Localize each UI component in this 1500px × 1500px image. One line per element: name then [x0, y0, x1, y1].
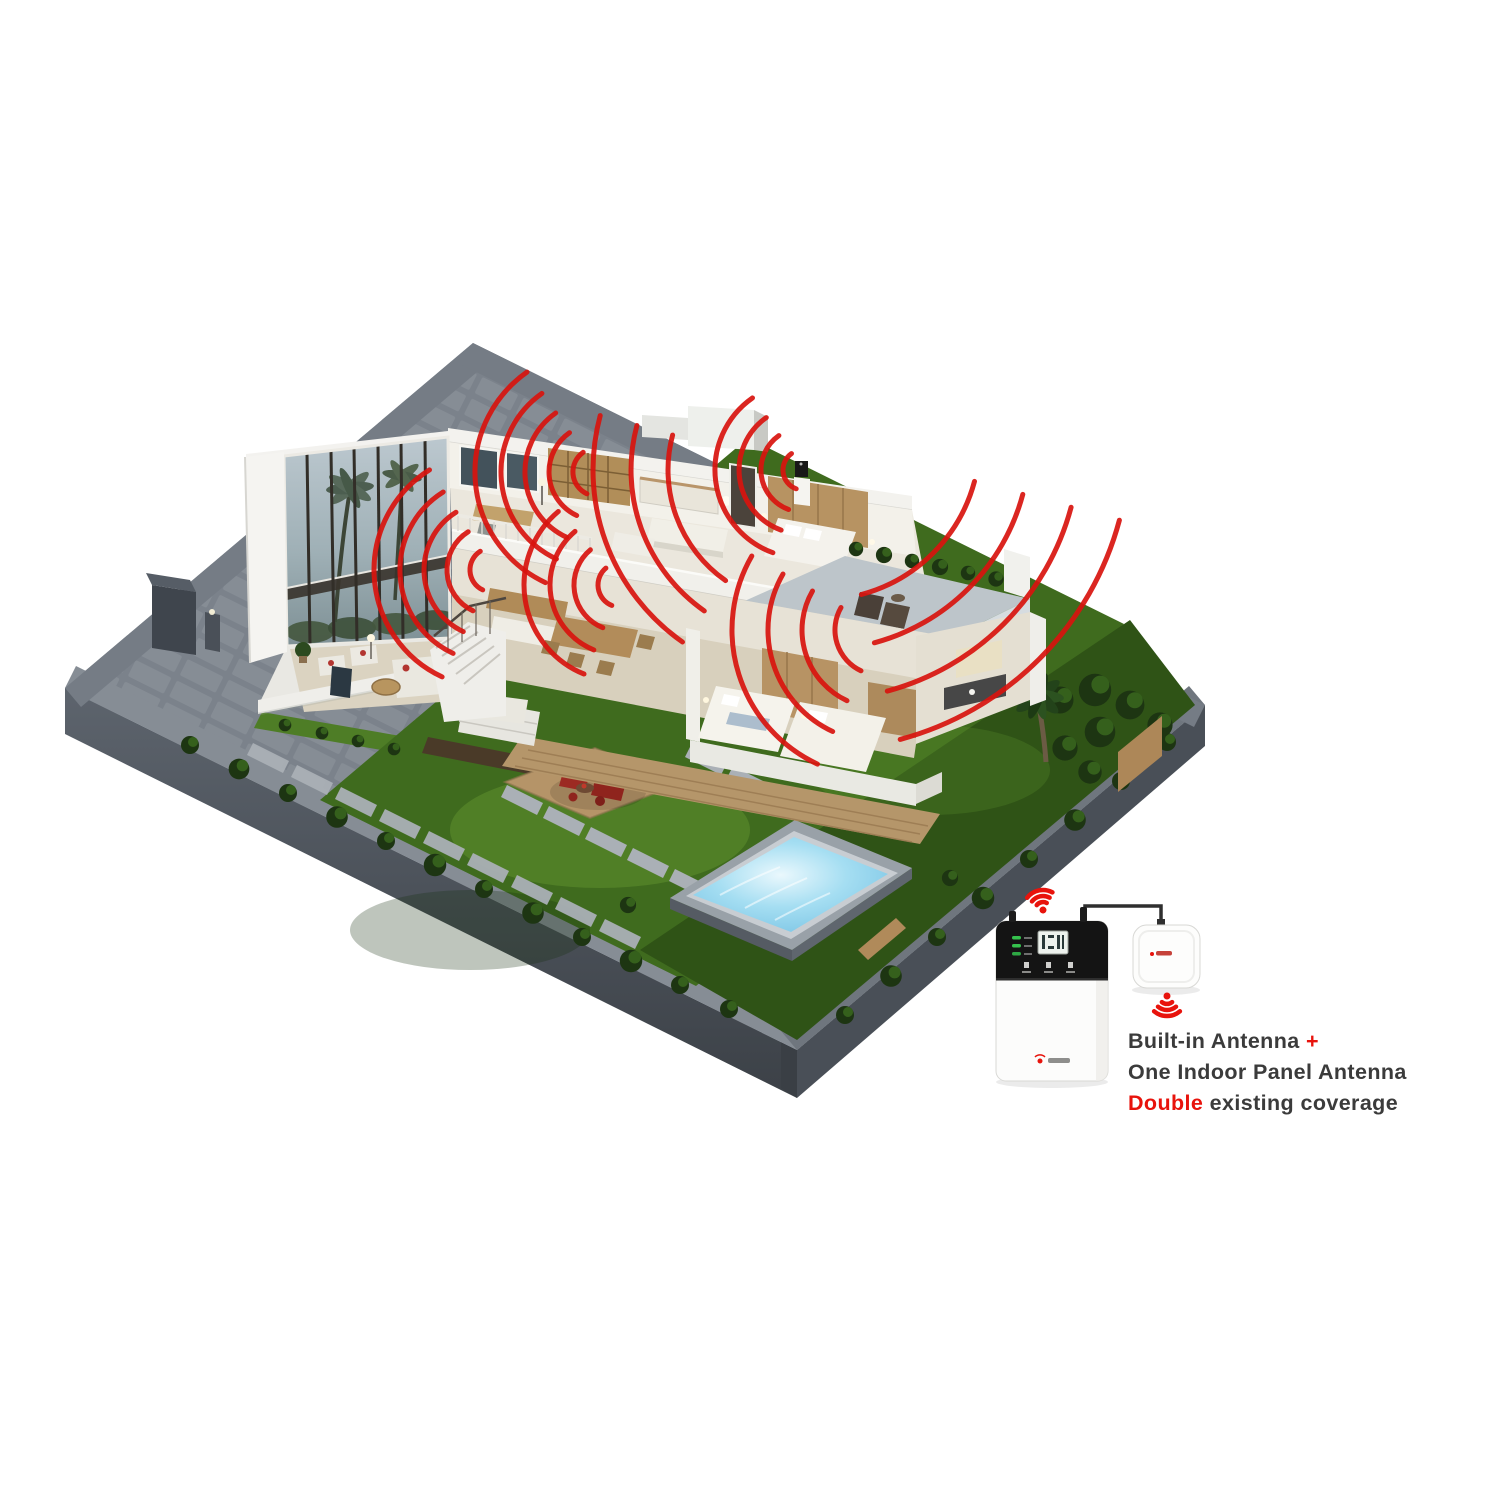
upper-window [506, 452, 538, 492]
caption-block: Built-in Antenna + One Indoor Panel Ante… [1128, 1026, 1488, 1119]
antenna-port [1009, 911, 1016, 922]
caption-line-1: Built-in Antenna + [1128, 1026, 1488, 1057]
antenna-wifi-icon [1154, 993, 1180, 1017]
caption-double-highlight: Double [1128, 1091, 1203, 1115]
caption-line1-text: Built-in Antenna [1128, 1029, 1300, 1053]
indoor-panel-antenna [1132, 925, 1200, 995]
booster-wifi-icon [1026, 888, 1056, 916]
signal-booster-device [996, 907, 1108, 1088]
lcd-display [1038, 931, 1068, 954]
caption-line-3: Double existing coverage [1128, 1088, 1488, 1119]
antenna-port [1080, 907, 1087, 922]
scene-illustration [0, 0, 1500, 1500]
caption-line-2: One Indoor Panel Antenna [1128, 1057, 1488, 1088]
product-illustration: Built-in Antenna + One Indoor Panel Ante… [0, 0, 1500, 1500]
caption-plus-sign: + [1306, 1029, 1319, 1053]
upper-window [460, 446, 498, 490]
tv [330, 666, 352, 698]
indoor-booster-unit [794, 461, 810, 506]
